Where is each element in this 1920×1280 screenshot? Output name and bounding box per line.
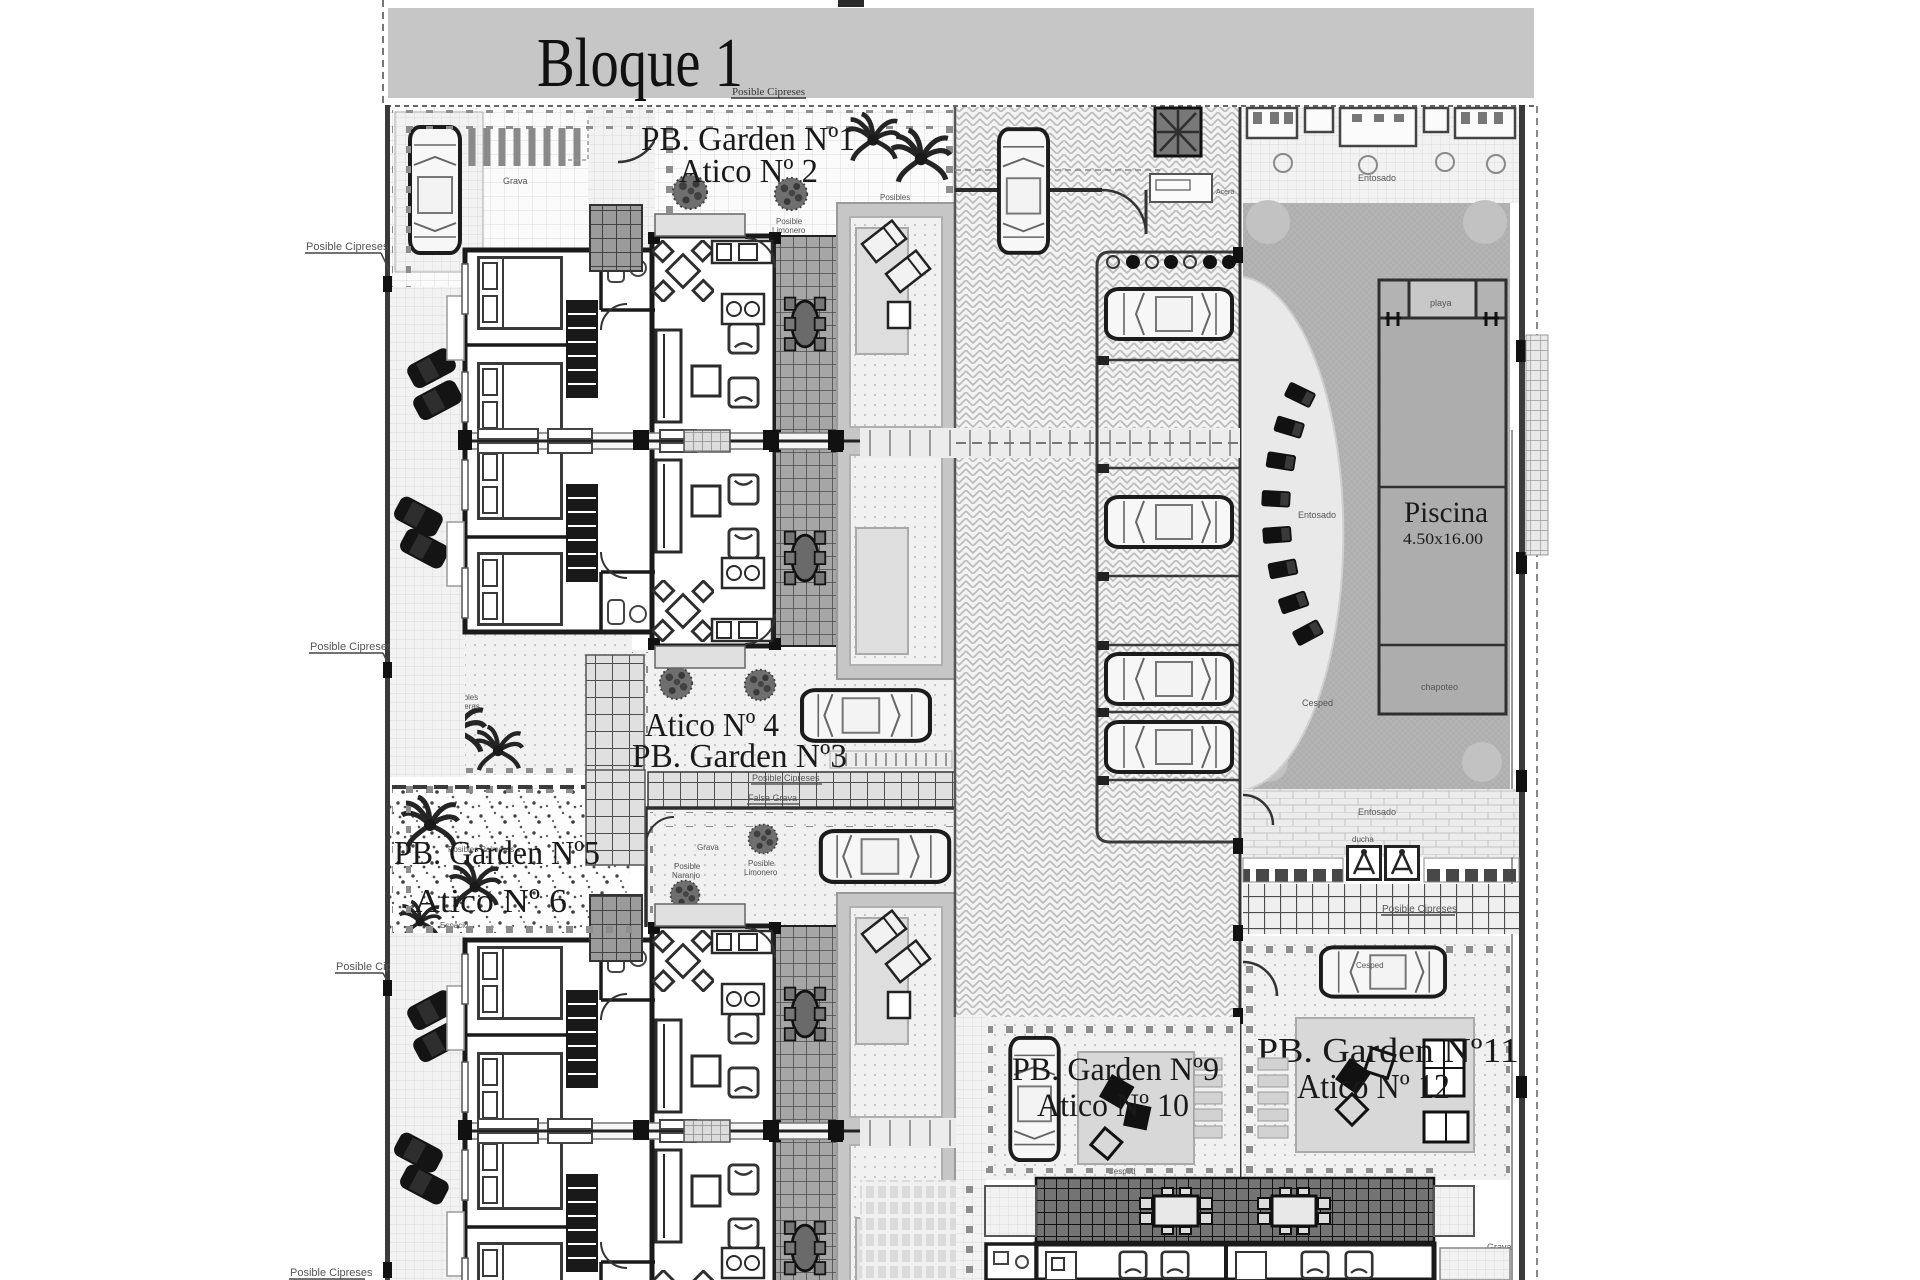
svg-text:PB. Garden Nº3: PB. Garden Nº3 [632,738,847,775]
svg-text:Grava: Grava [503,176,528,186]
svg-text:playa: playa [1430,298,1452,308]
svg-text:Atico Nº 2: Atico Nº 2 [679,153,818,190]
svg-text:Limonero: Limonero [744,868,778,877]
svg-text:Posible: Posible [748,859,775,868]
svg-text:Grava: Grava [697,843,719,852]
svg-text:Naranjo: Naranjo [672,871,701,880]
svg-text:Cesped: Cesped [1302,698,1333,708]
svg-text:Posible Cipreses: Posible Cipreses [290,1267,373,1279]
svg-text:ducha: ducha [1352,835,1374,844]
svg-text:Piscina: Piscina [1404,496,1488,529]
svg-text:Entosado: Entosado [1358,173,1396,183]
svg-text:Acera: Acera [1216,189,1234,196]
svg-text:Falsa Grava: Falsa Grava [748,793,797,803]
svg-text:Entosado: Entosado [1298,510,1336,520]
svg-text:Atico Nº 12: Atico Nº 12 [1297,1067,1450,1106]
svg-text:Posible: Posible [776,217,803,226]
svg-text:PB. Garden Nº9: PB. Garden Nº9 [1012,1052,1219,1088]
svg-text:Posible Cipreses: Posible Cipreses [732,86,805,98]
svg-text:Cesped: Cesped [1356,961,1384,970]
svg-text:Posible Cipreses: Posible Cipreses [310,641,393,653]
svg-text:PB. Garden Nº5: PB. Garden Nº5 [394,835,600,872]
svg-text:PB. Garden Nº11: PB. Garden Nº11 [1257,1031,1519,1070]
svg-text:Atico Nº 10: Atico Nº 10 [1037,1088,1189,1124]
svg-text:chapoteo: chapoteo [1421,682,1458,692]
svg-text:4.50x16.00: 4.50x16.00 [1403,531,1483,548]
svg-text:Posible Cipreses: Posible Cipreses [1382,904,1457,915]
svg-text:Atico Nº 6: Atico Nº 6 [414,883,567,920]
svg-text:Bloque 1: Bloque 1 [537,25,743,102]
svg-text:Posible Cipreses: Posible Cipreses [306,241,389,253]
svg-text:Entosado: Entosado [1358,807,1396,817]
svg-text:Posibles: Posibles [880,193,910,202]
svg-text:Posible: Posible [674,862,701,871]
